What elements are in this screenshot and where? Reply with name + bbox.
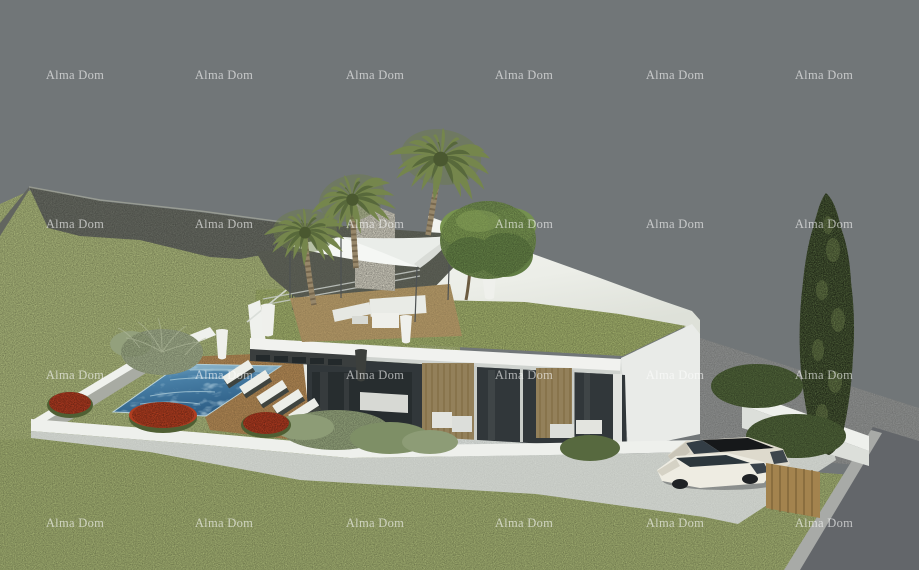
svg-text:Alma Dom: Alma Dom xyxy=(46,516,104,530)
svg-text:Alma Dom: Alma Dom xyxy=(646,516,704,530)
svg-text:Alma Dom: Alma Dom xyxy=(795,516,853,530)
svg-text:Alma Dom: Alma Dom xyxy=(795,368,853,382)
svg-text:Alma Dom: Alma Dom xyxy=(495,368,553,382)
svg-text:Alma Dom: Alma Dom xyxy=(195,217,253,231)
svg-text:Alma Dom: Alma Dom xyxy=(195,516,253,530)
svg-text:Alma Dom: Alma Dom xyxy=(646,217,704,231)
svg-text:Alma Dom: Alma Dom xyxy=(646,368,704,382)
svg-text:Alma Dom: Alma Dom xyxy=(795,68,853,82)
svg-text:Alma Dom: Alma Dom xyxy=(495,217,553,231)
svg-text:Alma Dom: Alma Dom xyxy=(46,68,104,82)
svg-text:Alma Dom: Alma Dom xyxy=(195,368,253,382)
svg-text:Alma Dom: Alma Dom xyxy=(46,368,104,382)
svg-text:Alma Dom: Alma Dom xyxy=(646,68,704,82)
svg-text:Alma Dom: Alma Dom xyxy=(495,68,553,82)
svg-text:Alma Dom: Alma Dom xyxy=(795,217,853,231)
svg-text:Alma Dom: Alma Dom xyxy=(46,217,104,231)
svg-text:Alma Dom: Alma Dom xyxy=(495,516,553,530)
svg-text:Alma Dom: Alma Dom xyxy=(346,368,404,382)
svg-text:Alma Dom: Alma Dom xyxy=(346,217,404,231)
svg-text:Alma Dom: Alma Dom xyxy=(346,68,404,82)
svg-text:Alma Dom: Alma Dom xyxy=(195,68,253,82)
svg-text:Alma Dom: Alma Dom xyxy=(346,516,404,530)
